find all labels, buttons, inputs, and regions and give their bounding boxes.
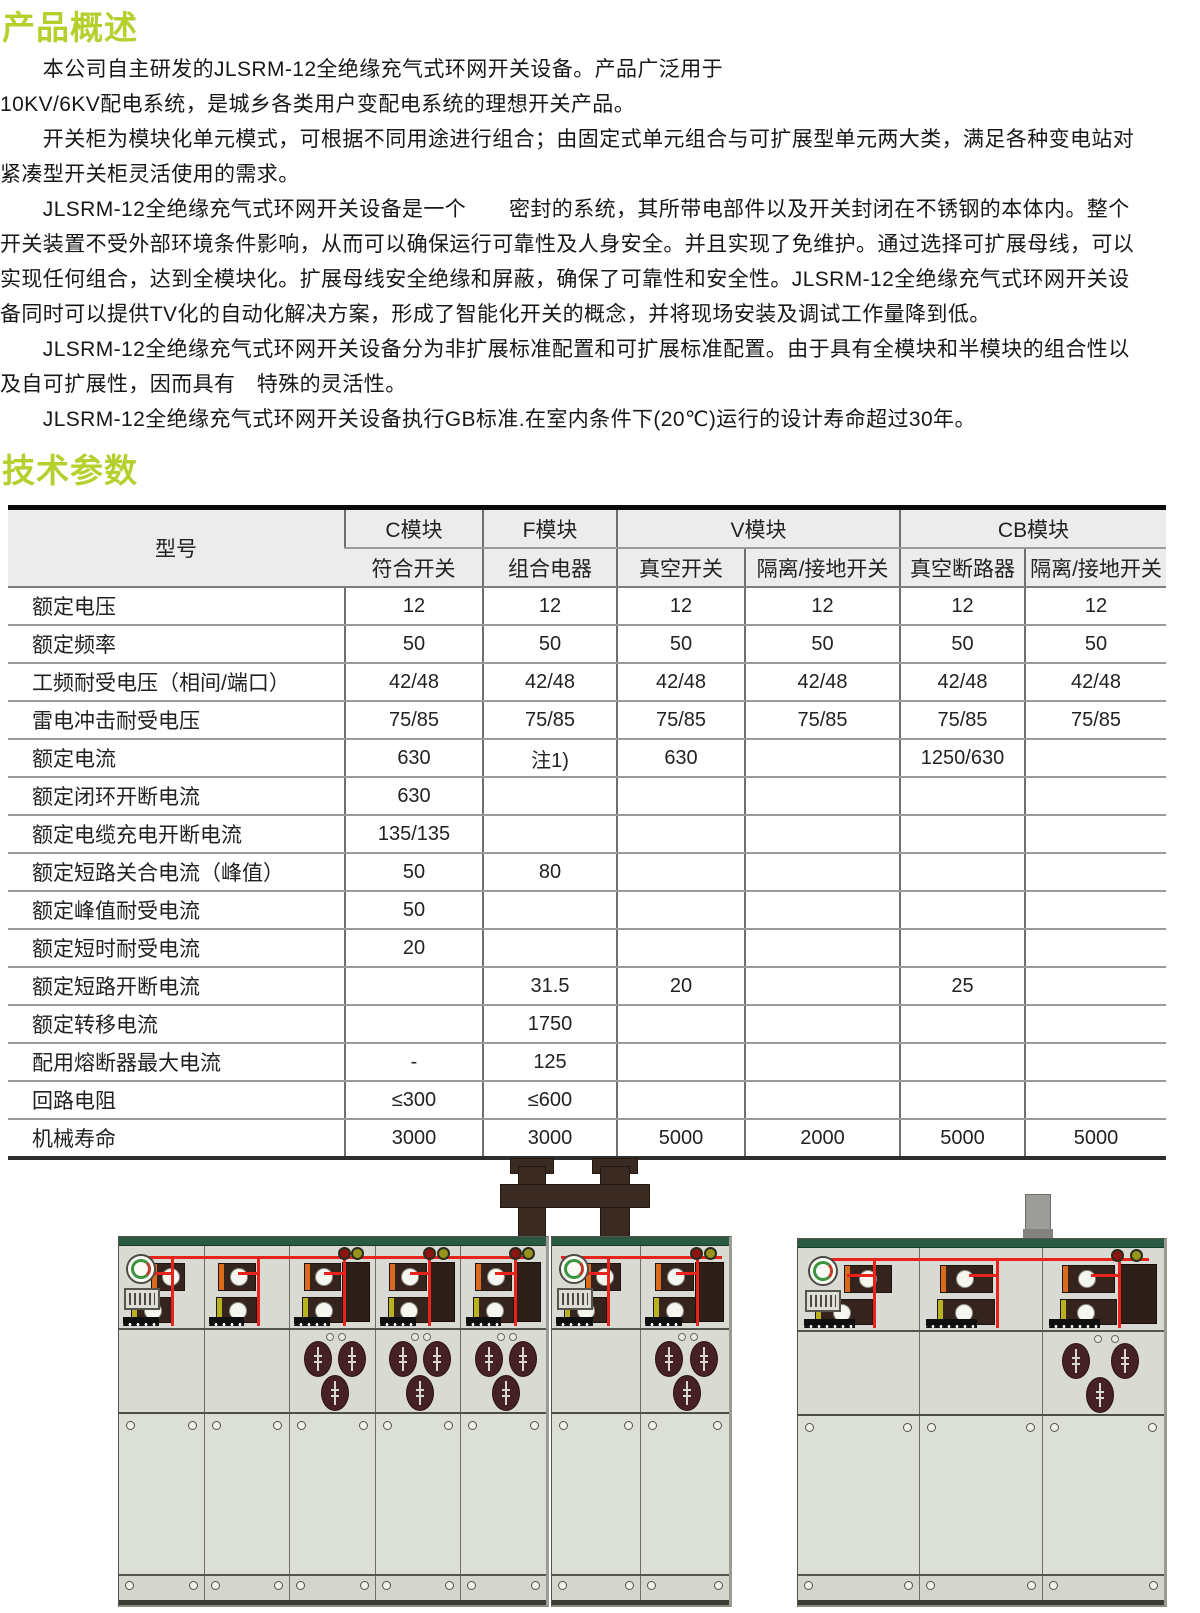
indicator-lamp-icon: [1111, 1249, 1124, 1262]
indicator-lamp-icon: [509, 1247, 522, 1260]
fuse-compartment: [798, 1332, 920, 1414]
mimic-bus-line: [140, 1256, 529, 1259]
table-cell: [617, 1043, 745, 1081]
table-cell: 50: [1025, 625, 1166, 663]
fuse-icon: [1062, 1343, 1090, 1379]
table-cell: 42/48: [1025, 663, 1166, 701]
cabinet-door-section: [552, 1412, 729, 1574]
table-cell: 50: [483, 625, 617, 663]
table-cell: 50: [900, 625, 1025, 663]
base-panel: [552, 1576, 641, 1600]
screw-icon: [1049, 1581, 1058, 1590]
screw-icon: [125, 1581, 134, 1590]
label-strip: [209, 1317, 245, 1326]
fuse-symbol: [351, 1347, 353, 1371]
base-panel: [920, 1576, 1042, 1600]
fuse-icon: [1086, 1377, 1114, 1413]
table-row-label: 额定转移电流: [8, 1005, 345, 1043]
table-cell: 1250/630: [900, 739, 1025, 777]
screw-icon: [648, 1421, 657, 1430]
screw-icon: [273, 1421, 282, 1430]
table-cell: 630: [345, 739, 483, 777]
table-row: 额定转移电流1750: [8, 1005, 1166, 1043]
label-strip: [466, 1317, 502, 1326]
overview-text-line: JLSRM-12全绝缘充气式环网开关设备执行GB标准.在室内条件下(20℃)运行…: [0, 402, 1200, 437]
fuse-symbol: [402, 1347, 404, 1371]
fuse-symbol: [1075, 1349, 1077, 1373]
table-row-label: 配用熔断器最大电流: [8, 1043, 345, 1081]
table-row-label: 额定短路开断电流: [8, 967, 345, 1005]
screw-icon: [1149, 1581, 1158, 1590]
fuse-canister-icon: [342, 1262, 369, 1322]
table-group-header: C模块: [345, 508, 483, 549]
switch-module-icon: [655, 1263, 694, 1291]
switch-knob: [596, 1268, 614, 1286]
fuse-icon: [321, 1375, 349, 1411]
mimic-line: [847, 1274, 876, 1277]
figure-area: [0, 1160, 1200, 1609]
table-row: 额定电缆充电开断电流135/135: [8, 815, 1166, 853]
table-cell: [1025, 739, 1166, 777]
label-strip: [380, 1317, 416, 1326]
table-cell: 75/85: [900, 701, 1025, 739]
cabinet-top-strip: [119, 1237, 546, 1246]
screw-icon: [558, 1581, 567, 1590]
fuse-icon: [690, 1341, 718, 1377]
cabinet-door: [1043, 1416, 1164, 1574]
screw-icon: [1026, 1423, 1035, 1432]
cabinet-base: [119, 1574, 546, 1605]
overview-text-line: JLSRM-12全绝缘充气式环网开关设备分为非扩展标准配置和可扩展标准配置。由于…: [0, 332, 1200, 367]
table-cell: 42/48: [900, 663, 1025, 701]
table-subcol-header: 符合开关: [345, 548, 483, 587]
table-cell: [745, 967, 900, 1005]
vent-hole-icon: [690, 1333, 698, 1341]
cabinet-door: [641, 1414, 729, 1574]
table-cell: [345, 967, 483, 1005]
params-heading: 技术参数: [2, 451, 1200, 491]
cabinet-fuse-section: [552, 1328, 729, 1412]
table-cell: [1025, 929, 1166, 967]
table-cell: [745, 1005, 900, 1043]
table-row: 额定频率505050505050: [8, 625, 1166, 663]
screw-icon: [531, 1581, 540, 1590]
table-cell: [617, 1005, 745, 1043]
screw-icon: [211, 1581, 220, 1590]
table-group-header: CB模块: [900, 508, 1166, 549]
switch-module-icon: [1062, 1265, 1115, 1293]
table-subcol-header: 组合电器: [483, 548, 617, 587]
logo-icon: [559, 1254, 589, 1284]
switch-module-icon: [389, 1263, 427, 1291]
table-cell: [1025, 967, 1166, 1005]
switch-module-icon: [218, 1263, 256, 1291]
table-cell: 20: [617, 967, 745, 1005]
mimic-line: [1118, 1258, 1121, 1328]
table-cell: -: [345, 1043, 483, 1081]
table-cell: 50: [617, 625, 745, 663]
specs-table: 型号C模块F模块V模块CB模块符合开关组合电器真空开关隔离/接地开关真空断路器隔…: [8, 505, 1166, 1160]
label-strip: [645, 1317, 682, 1326]
fuse-symbol: [686, 1381, 688, 1405]
cabinet-figure: [551, 1236, 732, 1607]
cabinet-door-section: [798, 1414, 1164, 1574]
logo-icon: [808, 1256, 838, 1286]
switch-knob: [1078, 1270, 1096, 1288]
overview-text-line: JLSRM-12全绝缘充气式环网开关设备是一个 密封的系统，其所带电部件以及开关…: [0, 192, 1200, 227]
fuse-icon: [338, 1341, 366, 1377]
cabinet-door: [290, 1414, 376, 1574]
table-cell: [1025, 853, 1166, 891]
screw-icon: [468, 1421, 477, 1430]
mimic-line: [238, 1272, 258, 1275]
screw-icon: [927, 1423, 936, 1432]
screw-icon: [189, 1581, 198, 1590]
table-cell: 20: [345, 929, 483, 967]
table-row: 额定电流630注1)6301250/630: [8, 739, 1166, 777]
fuse-compartment: [290, 1330, 376, 1412]
table-cell: [617, 929, 745, 967]
screw-icon: [530, 1421, 539, 1430]
screw-icon: [296, 1581, 305, 1590]
cabinet-door: [376, 1414, 462, 1574]
overview-text-line: 本公司自主研发的JLSRM-12全绝缘充气式环网开关设备。产品广泛用于: [0, 52, 1200, 87]
table-cell: [745, 891, 900, 929]
table-cell: [900, 777, 1025, 815]
fuse-symbol: [1099, 1383, 1101, 1407]
screw-icon: [1148, 1423, 1157, 1432]
base-panel: [641, 1576, 729, 1600]
screw-icon: [297, 1421, 306, 1430]
table-cell: 12: [745, 587, 900, 625]
switch-knob: [401, 1268, 419, 1286]
switch-knob: [667, 1268, 685, 1286]
overview-text-line: 及自可扩展性，因而具有 特殊的灵活性。: [0, 367, 1200, 402]
logo-ring: [564, 1259, 584, 1279]
table-cell: [745, 777, 900, 815]
fuse-icon: [492, 1375, 520, 1411]
table-cell: [900, 815, 1025, 853]
mimic-line: [1091, 1274, 1120, 1277]
base-panel: [798, 1576, 920, 1600]
table-cell: [1025, 1043, 1166, 1081]
table-cell: 3000: [483, 1119, 617, 1158]
cabinet-door: [461, 1414, 546, 1574]
nameplate-icon: [557, 1288, 593, 1310]
cabinet-door: [119, 1414, 205, 1574]
label-strip: [123, 1317, 159, 1326]
nameplate-icon: [805, 1290, 841, 1312]
fuse-icon: [655, 1341, 683, 1377]
mimic-line: [410, 1272, 430, 1275]
cabinet-figure: [797, 1238, 1167, 1607]
screw-icon: [713, 1421, 722, 1430]
table-cell: 50: [745, 625, 900, 663]
indicator-lamp-icon: [351, 1247, 364, 1260]
vent-hole-icon: [1111, 1335, 1119, 1343]
cabinet-mimic-section: [119, 1246, 546, 1328]
screw-icon: [625, 1581, 634, 1590]
indicator-lamp-icon: [1130, 1249, 1143, 1262]
fuse-compartment: [205, 1330, 291, 1412]
table-row-label: 额定频率: [8, 625, 345, 663]
table-cell: [745, 1043, 900, 1081]
table-cell: [1025, 891, 1166, 929]
mimic-line: [324, 1272, 344, 1275]
fuse-icon: [1111, 1343, 1139, 1379]
table-row-label: 额定闭环开断电流: [8, 777, 345, 815]
table-row: 回路电阻≤300≤600: [8, 1081, 1166, 1119]
logo-icon: [126, 1254, 156, 1284]
label-strip: [556, 1317, 593, 1326]
table-row: 额定短路关合电流（峰值）5080: [8, 853, 1166, 891]
table-cell: 12: [345, 587, 483, 625]
fuse-canister-icon: [695, 1262, 723, 1322]
table-cell: [617, 815, 745, 853]
table-cell: [617, 1081, 745, 1119]
mimic-line: [171, 1256, 174, 1326]
fuse-symbol: [317, 1347, 319, 1371]
fuse-symbol: [1124, 1349, 1126, 1373]
table-model-header: 型号: [8, 508, 345, 588]
table-cell: [1025, 1081, 1166, 1119]
fuse-icon: [304, 1341, 332, 1377]
indicator-lamp-icon: [437, 1247, 450, 1260]
cabinet-door: [798, 1416, 920, 1574]
specs-table-head: 型号C模块F模块V模块CB模块符合开关组合电器真空开关隔离/接地开关真空断路器隔…: [8, 508, 1166, 588]
vent-hole-icon: [497, 1333, 505, 1341]
table-cell: 75/85: [745, 701, 900, 739]
indicator-lamp-icon: [522, 1247, 535, 1260]
table-cell: 50: [345, 891, 483, 929]
mimic-line: [514, 1256, 517, 1326]
table-row: 机械寿命300030005000200050005000: [8, 1119, 1166, 1158]
logo-ring: [131, 1259, 151, 1279]
table-row: 雷电冲击耐受电压75/8575/8575/8575/8575/8575/85: [8, 701, 1166, 739]
mimic-bus-line: [816, 1258, 1149, 1261]
table-cell: 25: [900, 967, 1025, 1005]
cabinet-door-section: [119, 1412, 546, 1574]
table-cell: 75/85: [1025, 701, 1166, 739]
base-panel: [461, 1576, 546, 1600]
nameplate-icon: [124, 1288, 160, 1310]
table-cell: [745, 853, 900, 891]
vent-hole-icon: [338, 1333, 346, 1341]
mimic-line: [969, 1274, 998, 1277]
base-panel: [376, 1576, 462, 1600]
fuse-icon: [389, 1341, 417, 1377]
screw-icon: [1027, 1581, 1036, 1590]
table-cell: 630: [617, 739, 745, 777]
table-subcol-header: 真空开关: [617, 548, 745, 587]
fuse-symbol: [436, 1347, 438, 1371]
mimic-line: [343, 1256, 346, 1326]
table-cell: [900, 929, 1025, 967]
document-page: { "page": { "overview_heading": "产品概述", …: [0, 8, 1200, 1613]
fuse-compartment: [1043, 1332, 1164, 1414]
label-strip: [294, 1317, 330, 1326]
table-cell: 75/85: [345, 701, 483, 739]
screw-icon: [559, 1421, 568, 1430]
table-cell: [483, 929, 617, 967]
table-cell: 2000: [745, 1119, 900, 1158]
screw-icon: [445, 1581, 454, 1590]
switch-knob: [487, 1268, 505, 1286]
table-row-label: 工频耐受电压（相间/端口）: [8, 663, 345, 701]
screw-icon: [647, 1581, 656, 1590]
indicator-lamp-icon: [338, 1247, 351, 1260]
table-row-label: 雷电冲击耐受电压: [8, 701, 345, 739]
table-row: 工频耐受电压（相间/端口）42/4842/4842/4842/4842/4842…: [8, 663, 1166, 701]
table-cell: [1025, 777, 1166, 815]
screw-icon: [804, 1581, 813, 1590]
switch-knob: [230, 1268, 248, 1286]
table-row: 额定短时耐受电流20: [8, 929, 1166, 967]
overview-text-line: 备同时可以提供TV化的自动化解决方案，形成了智能化开关的概念，并将现场安装及调试…: [0, 297, 1200, 332]
fuse-icon: [423, 1341, 451, 1377]
fuse-icon: [673, 1375, 701, 1411]
table-cell: 12: [483, 587, 617, 625]
fuse-icon: [475, 1341, 503, 1377]
table-cell: [483, 891, 617, 929]
overview-text-line: 紧凑型开关柜灵活使用的需求。: [0, 157, 1200, 192]
table-row: 额定电压121212121212: [8, 587, 1166, 625]
fuse-symbol: [488, 1347, 490, 1371]
vent-hole-icon: [326, 1333, 334, 1341]
fuse-symbol: [522, 1347, 524, 1371]
table-cell: ≤600: [483, 1081, 617, 1119]
table-cell: [483, 777, 617, 815]
switch-module-icon: [151, 1263, 185, 1291]
screw-icon: [805, 1423, 814, 1432]
table-cell: 31.5: [483, 967, 617, 1005]
cabinet-mimic-section: [798, 1248, 1164, 1330]
logo-ring: [813, 1261, 833, 1281]
switch-module-icon: [844, 1265, 892, 1293]
fuse-compartment: [119, 1330, 205, 1412]
fuse-compartment: [641, 1330, 729, 1412]
table-cell: 75/85: [617, 701, 745, 739]
table-cell: [900, 891, 1025, 929]
screw-icon: [188, 1421, 197, 1430]
screw-icon: [383, 1421, 392, 1430]
table-cell: 注1): [483, 739, 617, 777]
table-row-label: 额定电流: [8, 739, 345, 777]
cabinet-fuse-section: [119, 1328, 546, 1412]
table-cell: ≤300: [345, 1081, 483, 1119]
label-strip: [1049, 1319, 1100, 1328]
table-cell: [617, 891, 745, 929]
table-cell: 1750: [483, 1005, 617, 1043]
table-group-header: F模块: [483, 508, 617, 549]
table-cell: [345, 1005, 483, 1043]
label-strip: [804, 1319, 855, 1328]
base-panel: [205, 1576, 291, 1600]
mimic-line: [696, 1256, 699, 1326]
table-cell: 5000: [617, 1119, 745, 1158]
table-cell: [617, 777, 745, 815]
table-cell: [483, 815, 617, 853]
overview-heading: 产品概述: [2, 8, 1200, 48]
cabinet-base: [798, 1574, 1164, 1605]
vent-hole-icon: [423, 1333, 431, 1341]
screw-icon: [274, 1581, 283, 1590]
table-cell: [900, 1005, 1025, 1043]
screw-icon: [444, 1421, 453, 1430]
overview-text-line: 开关装置不受外部环境条件影响，从而可以确保运行可靠性及人身安全。并且实现了免维护…: [0, 227, 1200, 262]
fuse-compartment: [920, 1332, 1042, 1414]
table-cell: [745, 1081, 900, 1119]
mimic-line: [153, 1272, 173, 1275]
screw-icon: [382, 1581, 391, 1590]
vent-hole-icon: [678, 1333, 686, 1341]
table-row-label: 回路电阻: [8, 1081, 345, 1119]
table-cell: 42/48: [483, 663, 617, 701]
cabinet-door: [205, 1414, 291, 1574]
table-cell: 42/48: [345, 663, 483, 701]
mimic-line: [257, 1256, 260, 1326]
fuse-symbol: [668, 1347, 670, 1371]
table-cell: [1025, 1005, 1166, 1043]
cabinet-top-strip: [552, 1237, 729, 1246]
fuse-symbol: [419, 1381, 421, 1405]
table-cell: [900, 1081, 1025, 1119]
table-cell: 5000: [900, 1119, 1025, 1158]
fuse-compartment: [376, 1330, 462, 1412]
vent-hole-icon: [509, 1333, 517, 1341]
screw-icon: [926, 1581, 935, 1590]
switch-knob: [956, 1270, 974, 1288]
table-cell: 125: [483, 1043, 617, 1081]
table-group-header: V模块: [617, 508, 900, 549]
screw-icon: [714, 1581, 723, 1590]
fuse-canister-icon: [1118, 1264, 1156, 1324]
table-row-label: 额定短路关合电流（峰值）: [8, 853, 345, 891]
fuse-compartment: [461, 1330, 546, 1412]
top-connector-stub: [1025, 1194, 1051, 1242]
table-row: 额定短路开断电流31.52025: [8, 967, 1166, 1005]
switch-module-icon: [475, 1263, 513, 1291]
screw-icon: [360, 1581, 369, 1590]
specs-table-body: 额定电压121212121212额定频率505050505050工频耐受电压（相…: [8, 587, 1166, 1158]
table-cell: [617, 853, 745, 891]
table-cell: 12: [900, 587, 1025, 625]
screw-icon: [126, 1421, 135, 1430]
cabinet-door: [920, 1416, 1042, 1574]
table-cell: 42/48: [617, 663, 745, 701]
fuse-symbol: [505, 1381, 507, 1405]
fuse-symbol: [703, 1347, 705, 1371]
mimic-line: [495, 1272, 515, 1275]
table-subcol-header: 真空断路器: [900, 548, 1025, 587]
table-cell: 5000: [1025, 1119, 1166, 1158]
fuse-icon: [406, 1375, 434, 1411]
table-cell: [900, 853, 1025, 891]
table-row-label: 额定电压: [8, 587, 345, 625]
overview-paragraphs: 本公司自主研发的JLSRM-12全绝缘充气式环网开关设备。产品广泛用于10KV/…: [0, 52, 1200, 437]
table-cell: 80: [483, 853, 617, 891]
cabinet-figure: [118, 1236, 549, 1607]
fuse-compartment: [552, 1330, 641, 1412]
table-cell: [745, 815, 900, 853]
table-row-label: 额定短时耐受电流: [8, 929, 345, 967]
table-subcol-header: 隔离/接地开关: [745, 548, 900, 587]
table-row: 配用熔断器最大电流-125: [8, 1043, 1166, 1081]
vent-hole-icon: [411, 1333, 419, 1341]
table-row-label: 额定峰值耐受电流: [8, 891, 345, 929]
screw-icon: [467, 1581, 476, 1590]
overview-text-line: 10KV/6KV配电系统，是城乡各类用户变配电系统的理想开关产品。: [0, 87, 1200, 122]
